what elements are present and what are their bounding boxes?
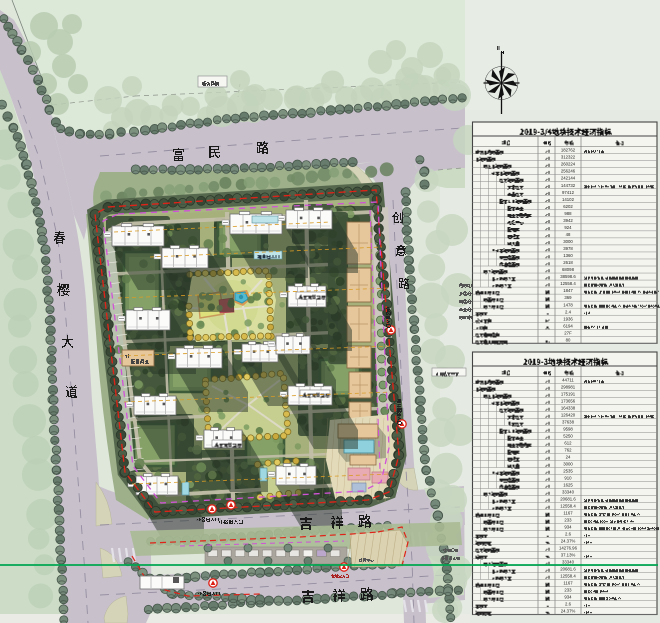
svg-text:144732: 144732 (561, 183, 576, 188)
svg-text:12558.4: 12558.4 (560, 504, 576, 509)
svg-text:173656: 173656 (561, 399, 576, 404)
svg-text:1360: 1360 (563, 253, 573, 258)
svg-text:924: 924 (564, 225, 572, 230)
svg-text:24: 24 (566, 455, 571, 460)
svg-text:612: 612 (564, 441, 572, 446)
svg-text:242144: 242144 (561, 176, 576, 181)
svg-text:80: 80 (566, 337, 571, 342)
svg-text:312322: 312322 (561, 155, 576, 160)
svg-text:2618: 2618 (563, 260, 573, 265)
svg-text:1478: 1478 (563, 302, 573, 307)
svg-text:2535: 2535 (563, 469, 573, 474)
svg-text:298981: 298981 (561, 385, 576, 390)
svg-text:6202: 6202 (563, 204, 573, 209)
svg-text:260224: 260224 (561, 162, 576, 167)
svg-text:3000: 3000 (563, 239, 573, 244)
svg-text:37638: 37638 (562, 420, 575, 425)
svg-text:1167: 1167 (563, 581, 573, 586)
svg-text:14102: 14102 (562, 197, 575, 202)
svg-text:38598.6: 38598.6 (560, 274, 576, 279)
svg-text:910: 910 (564, 476, 572, 481)
svg-text:3000: 3000 (563, 462, 573, 467)
svg-text:48: 48 (566, 232, 571, 237)
svg-text:369: 369 (564, 295, 572, 300)
svg-text:175191: 175191 (561, 392, 576, 397)
svg-text:20681.6: 20681.6 (560, 567, 576, 572)
svg-text:126420: 126420 (561, 413, 576, 418)
svg-text:2.6: 2.6 (565, 602, 572, 607)
svg-text:1167: 1167 (563, 511, 573, 516)
svg-text:12558.4: 12558.4 (560, 574, 576, 579)
svg-text:20681.6: 20681.6 (560, 497, 576, 502)
svg-text:68098: 68098 (562, 267, 575, 272)
svg-text:97412: 97412 (562, 190, 575, 195)
svg-text:37.13%: 37.13% (561, 553, 576, 558)
svg-text:233: 233 (564, 518, 572, 523)
svg-text:12558.4: 12558.4 (560, 281, 576, 286)
svg-text:2.4: 2.4 (565, 309, 572, 314)
svg-text:2.6: 2.6 (565, 532, 572, 537)
svg-text:9598: 9598 (563, 427, 573, 432)
svg-text:988: 988 (564, 211, 572, 216)
svg-text:5250: 5250 (563, 434, 573, 439)
svg-text:44711: 44711 (562, 378, 574, 383)
svg-text:24.37%: 24.37% (561, 539, 576, 544)
svg-text:233: 233 (564, 588, 572, 593)
svg-text:27F: 27F (564, 330, 572, 335)
svg-text:6194: 6194 (563, 323, 573, 328)
svg-text:33340: 33340 (562, 490, 575, 495)
svg-text:24.37%: 24.37% (561, 609, 576, 614)
svg-text:1625: 1625 (563, 483, 573, 488)
svg-text:182762: 182762 (561, 148, 576, 153)
svg-text:256246: 256246 (561, 169, 576, 174)
svg-text:33340: 33340 (562, 560, 575, 565)
svg-text:3978: 3978 (563, 246, 573, 251)
svg-text:3942: 3942 (563, 218, 573, 223)
svg-text:164338: 164338 (561, 406, 576, 411)
svg-text:762: 762 (564, 448, 572, 453)
svg-text:934: 934 (564, 525, 572, 530)
svg-text:1936: 1936 (563, 316, 573, 321)
svg-text:934: 934 (564, 595, 572, 600)
svg-text:1847: 1847 (563, 288, 573, 293)
svg-text:14276.96: 14276.96 (559, 546, 578, 551)
